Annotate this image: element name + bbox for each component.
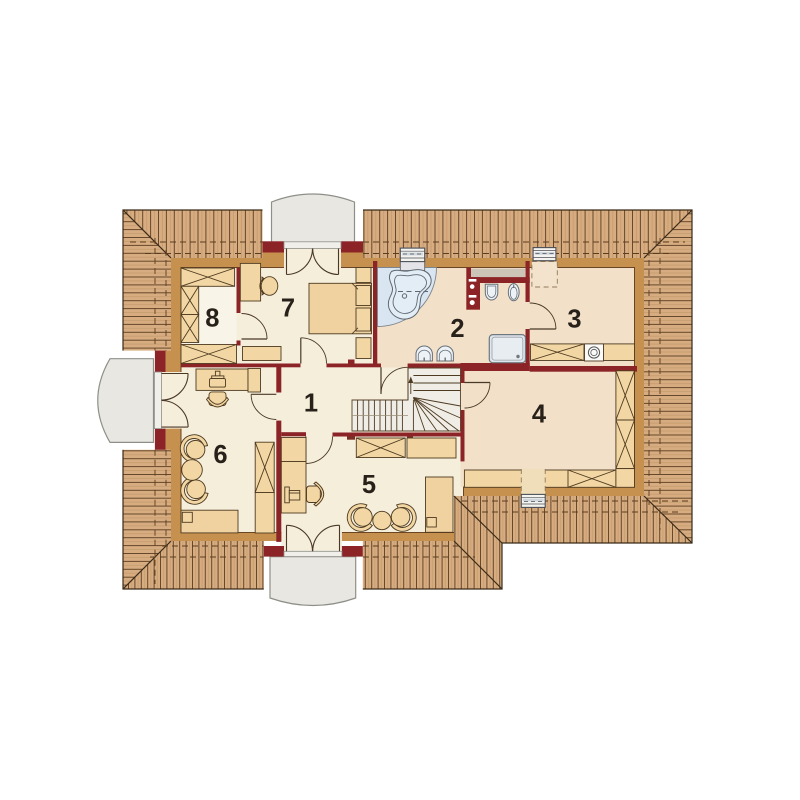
svg-text:5: 5 [362, 471, 376, 499]
svg-text:1: 1 [304, 390, 318, 418]
svg-text:3: 3 [567, 306, 581, 334]
svg-text:4: 4 [532, 401, 547, 429]
svg-text:2: 2 [450, 315, 464, 343]
svg-text:8: 8 [205, 305, 219, 333]
svg-text:7: 7 [281, 295, 295, 323]
svg-text:6: 6 [213, 441, 227, 469]
